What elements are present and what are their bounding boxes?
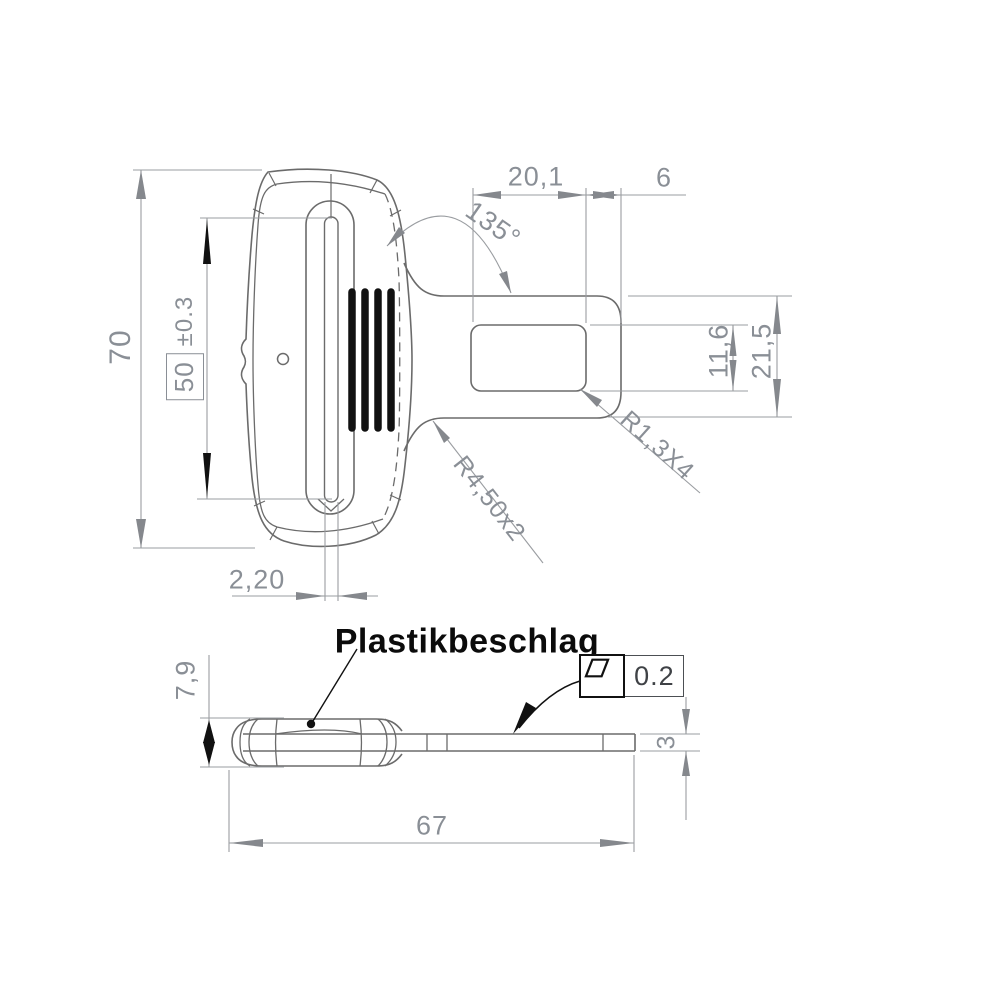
grip-ribs [352,292,391,428]
flatness-symbol-cell [579,654,625,697]
part-name-label: Plastikbeschlag [335,623,600,662]
front-view-part [242,169,621,546]
flatness-value-cell: 0.2 [625,656,683,696]
pin-hole [278,354,289,365]
strap-plate-segments [427,734,603,751]
tongue-slot-outline [471,325,586,391]
side-body-mid-curve-left [276,719,278,766]
flatness-leader [513,681,580,734]
dim-label-tongue-slot-height: 11,6 [706,324,733,379]
dim-label-slot-length-boxed: 50 [166,353,204,400]
front-view-dimensions [133,170,792,601]
side-body-right-cap-inner [378,719,387,766]
dimension-20-1-and-6 [473,188,686,323]
dim-label-tongue-height: 21,5 [749,323,776,380]
center-slit-outline [325,217,339,502]
dimension-50 [197,218,332,499]
dim-label-strap-thickness: 3 [655,735,680,750]
side-view-part [232,719,635,766]
dim-label-tongue-slot-width: 20,1 [508,164,565,191]
dimension-3 [640,697,700,820]
webbing-slot-outline [306,201,354,514]
slot-bottom-chevron [318,499,344,511]
dim-label-body-thickness: 7,9 [173,660,200,701]
flatness-value: 0.2 [634,661,675,692]
flatness-parallelogram-icon [581,656,613,680]
leader-dot [307,720,315,728]
buckle-body-outline [242,169,412,546]
tongue-outline [404,263,621,451]
dim-label-slot-length-group: 50 ±0.3 [166,296,204,400]
strap-plate [243,734,635,751]
drawing-canvas: 70 50 ±0.3 20,1 6 135° 11,6 21,5 R1,3X4 … [0,0,1000,1000]
side-body-left-cap-inner2 [249,719,258,766]
dim-label-center-slit-width: 2,20 [229,567,286,594]
dim-label-slot-length-tolerance: ±0.3 [171,296,199,347]
dim-label-overall-length: 67 [416,813,448,840]
side-body-mid-curve-right [360,719,362,766]
dim-label-tip-to-slot: 6 [656,165,672,192]
feature-control-frame: 0.2 [580,655,684,697]
dim-label-overall-height: 70 [106,329,136,364]
side-body-outline [232,719,402,766]
